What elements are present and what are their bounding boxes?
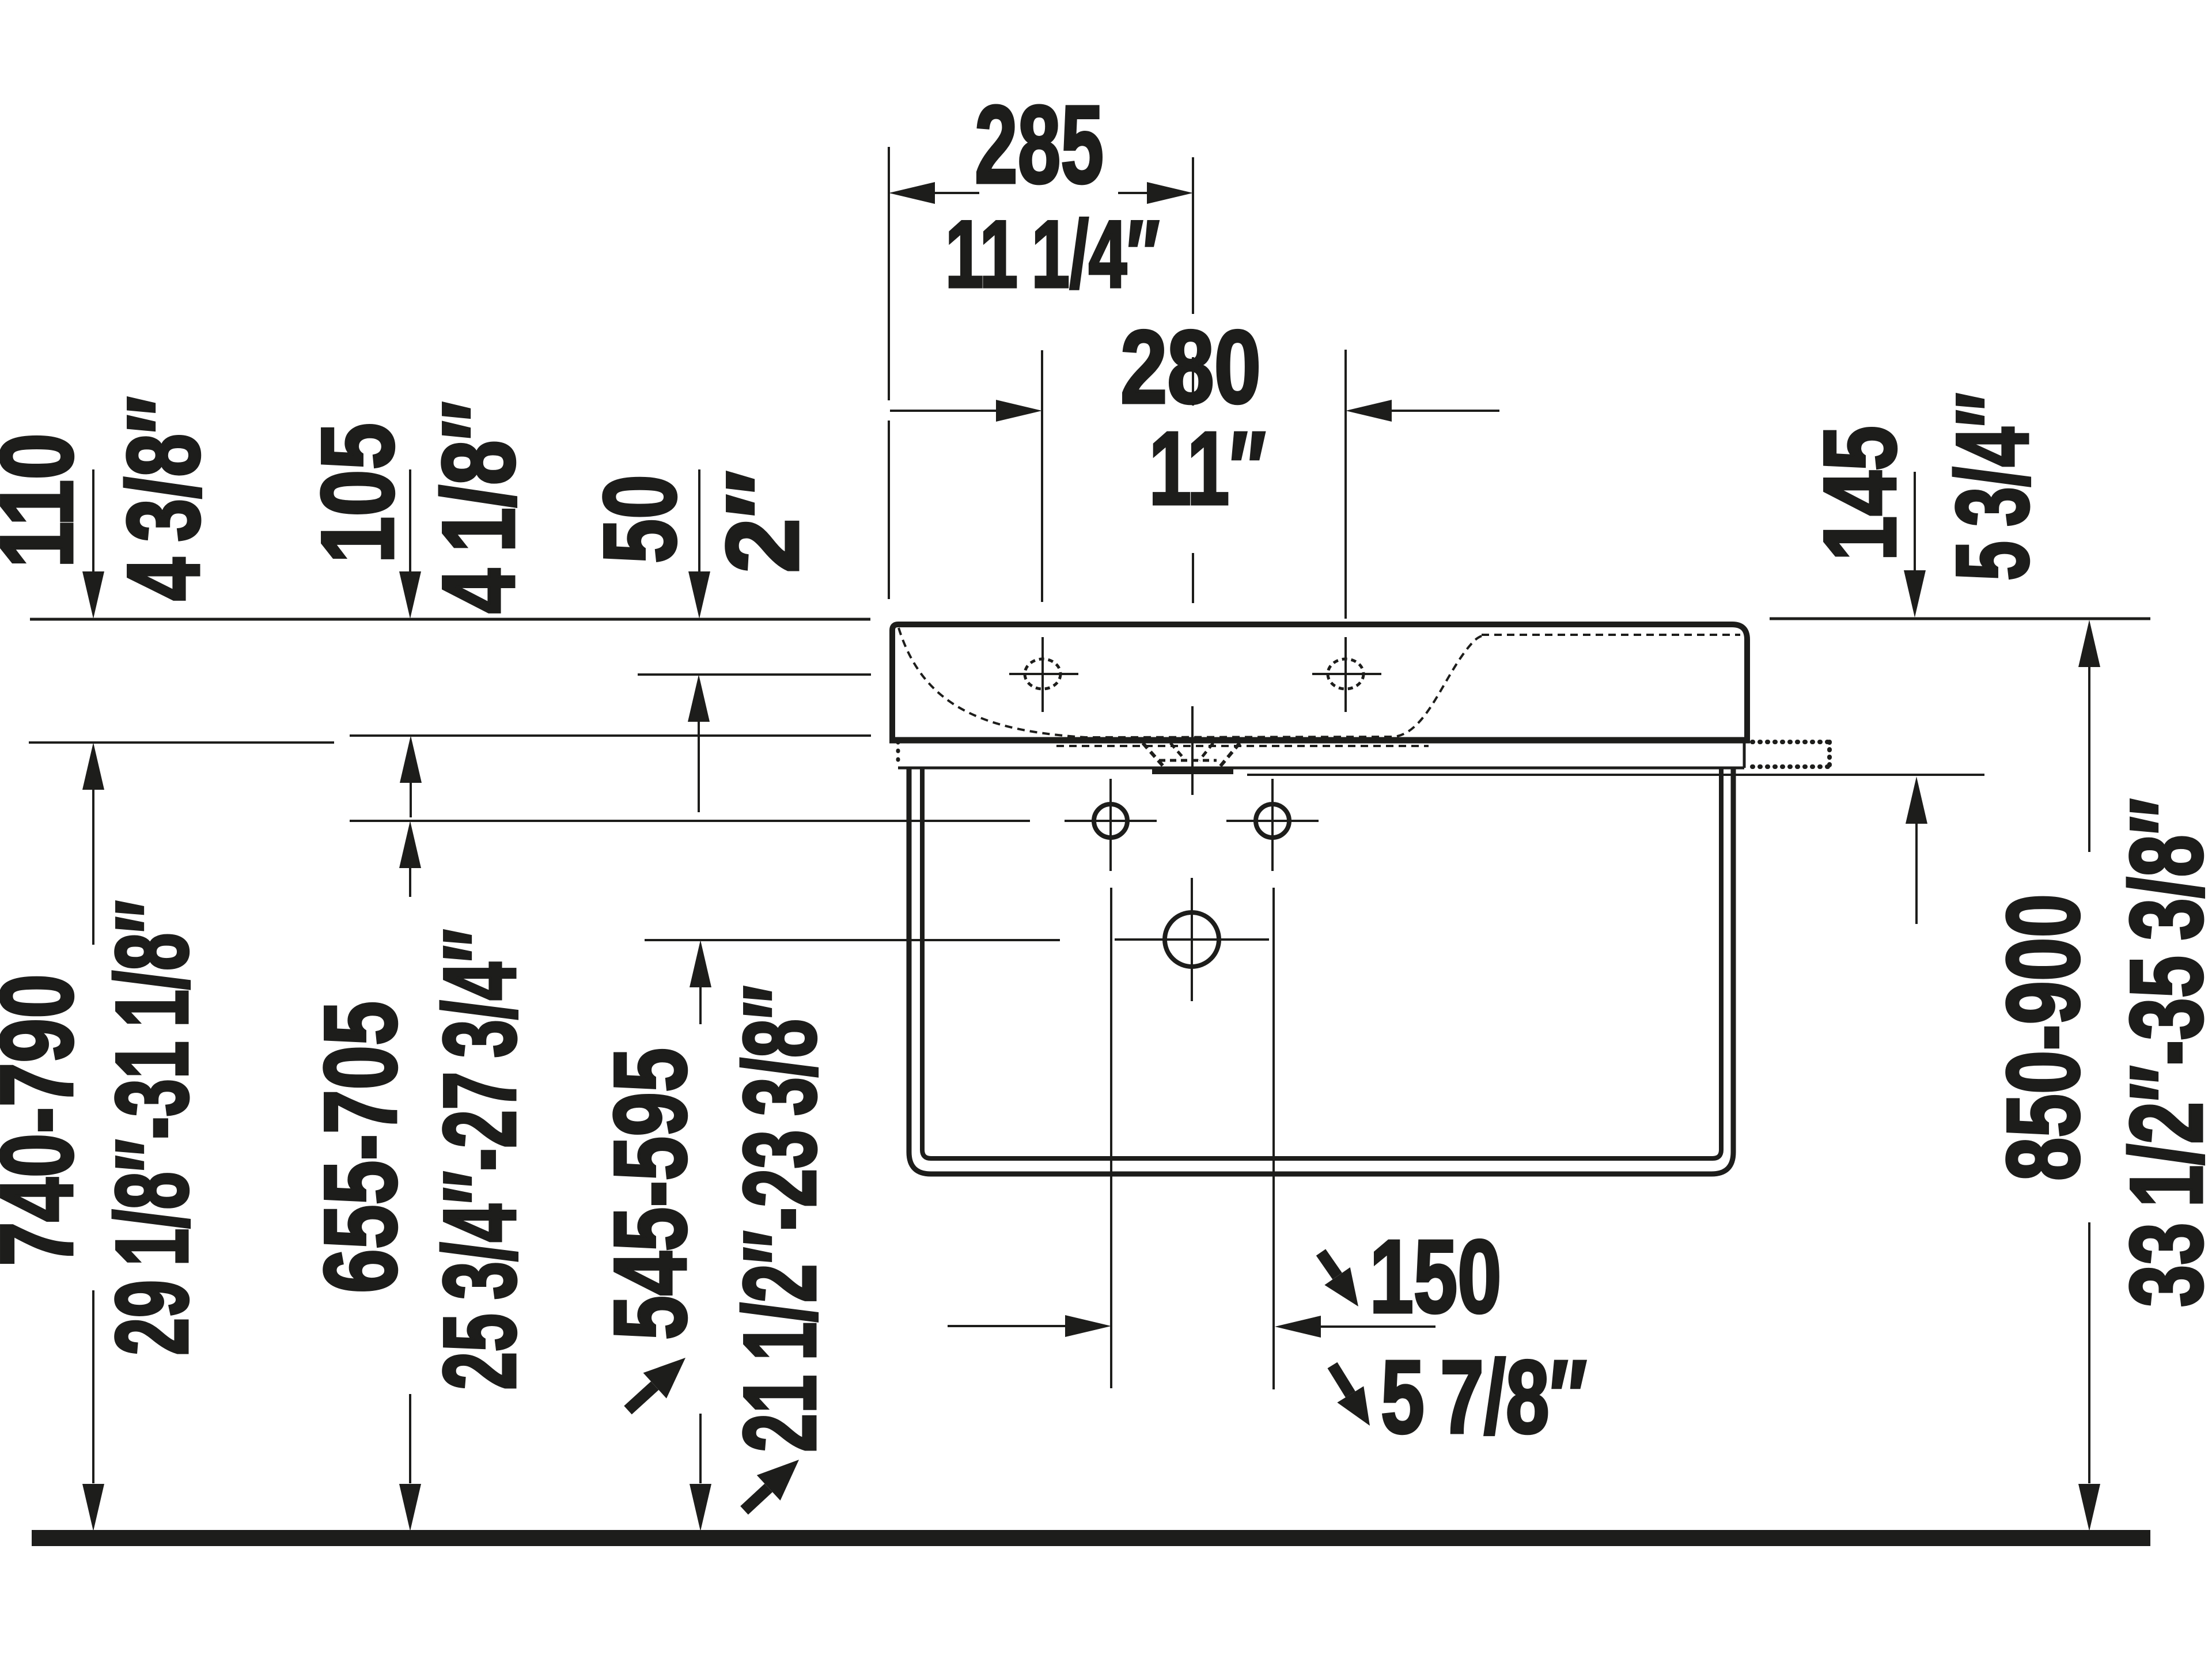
svg-text:110: 110 [0,433,94,568]
svg-text:655-705: 655-705 [303,1001,418,1293]
svg-text:145: 145 [1802,426,1917,561]
svg-text:545-595: 545-595 [593,1048,707,1340]
svg-text:11″: 11″ [1149,411,1266,527]
svg-text:11 1/4″: 11 1/4″ [945,201,1160,307]
svg-text:5 7/8″: 5 7/8″ [1381,1339,1587,1455]
svg-text:280: 280 [1120,309,1261,425]
svg-text:5 3/4″: 5 3/4″ [1935,393,2050,581]
svg-text:21 1/2″-23 3/8″: 21 1/2″-23 3/8″ [722,986,837,1452]
svg-text:25 3/4″-27 3/4″: 25 3/4″-27 3/4″ [422,929,537,1390]
svg-text:33 1/2″-35 3/8″: 33 1/2″-35 3/8″ [2109,798,2212,1307]
svg-text:29 1/8″-31 1/8″: 29 1/8″-31 1/8″ [94,900,209,1355]
svg-text:4 1/8″: 4 1/8″ [421,402,536,613]
svg-text:740-790: 740-790 [0,974,94,1266]
svg-text:105: 105 [300,423,415,563]
svg-text:2″: 2″ [705,471,820,573]
svg-text:4 3/8″: 4 3/8″ [106,396,221,601]
svg-text:850-900: 850-900 [1986,894,2100,1181]
svg-text:50: 50 [582,475,697,563]
svg-text:150: 150 [1370,1219,1502,1335]
svg-text:285: 285 [975,82,1104,206]
